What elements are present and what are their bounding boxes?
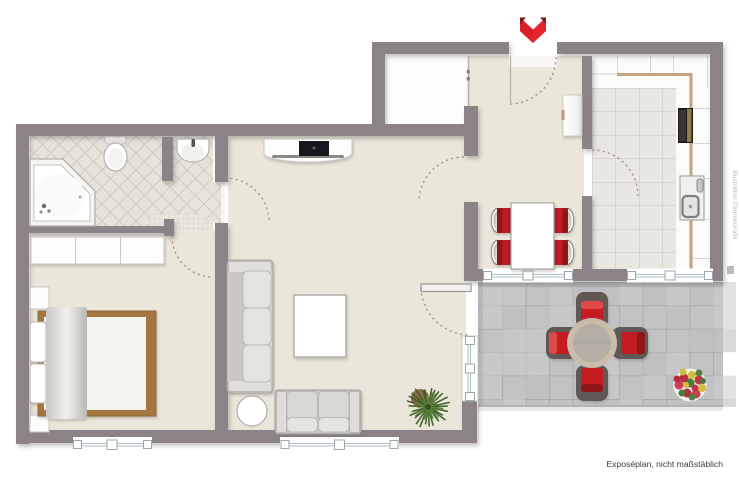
svg-text:Exposéplan, nicht maßstäblich: Exposéplan, nicht maßstäblich	[606, 459, 723, 469]
svg-text:Illustration ©ImmoGrafik: Illustration ©ImmoGrafik	[731, 170, 739, 241]
